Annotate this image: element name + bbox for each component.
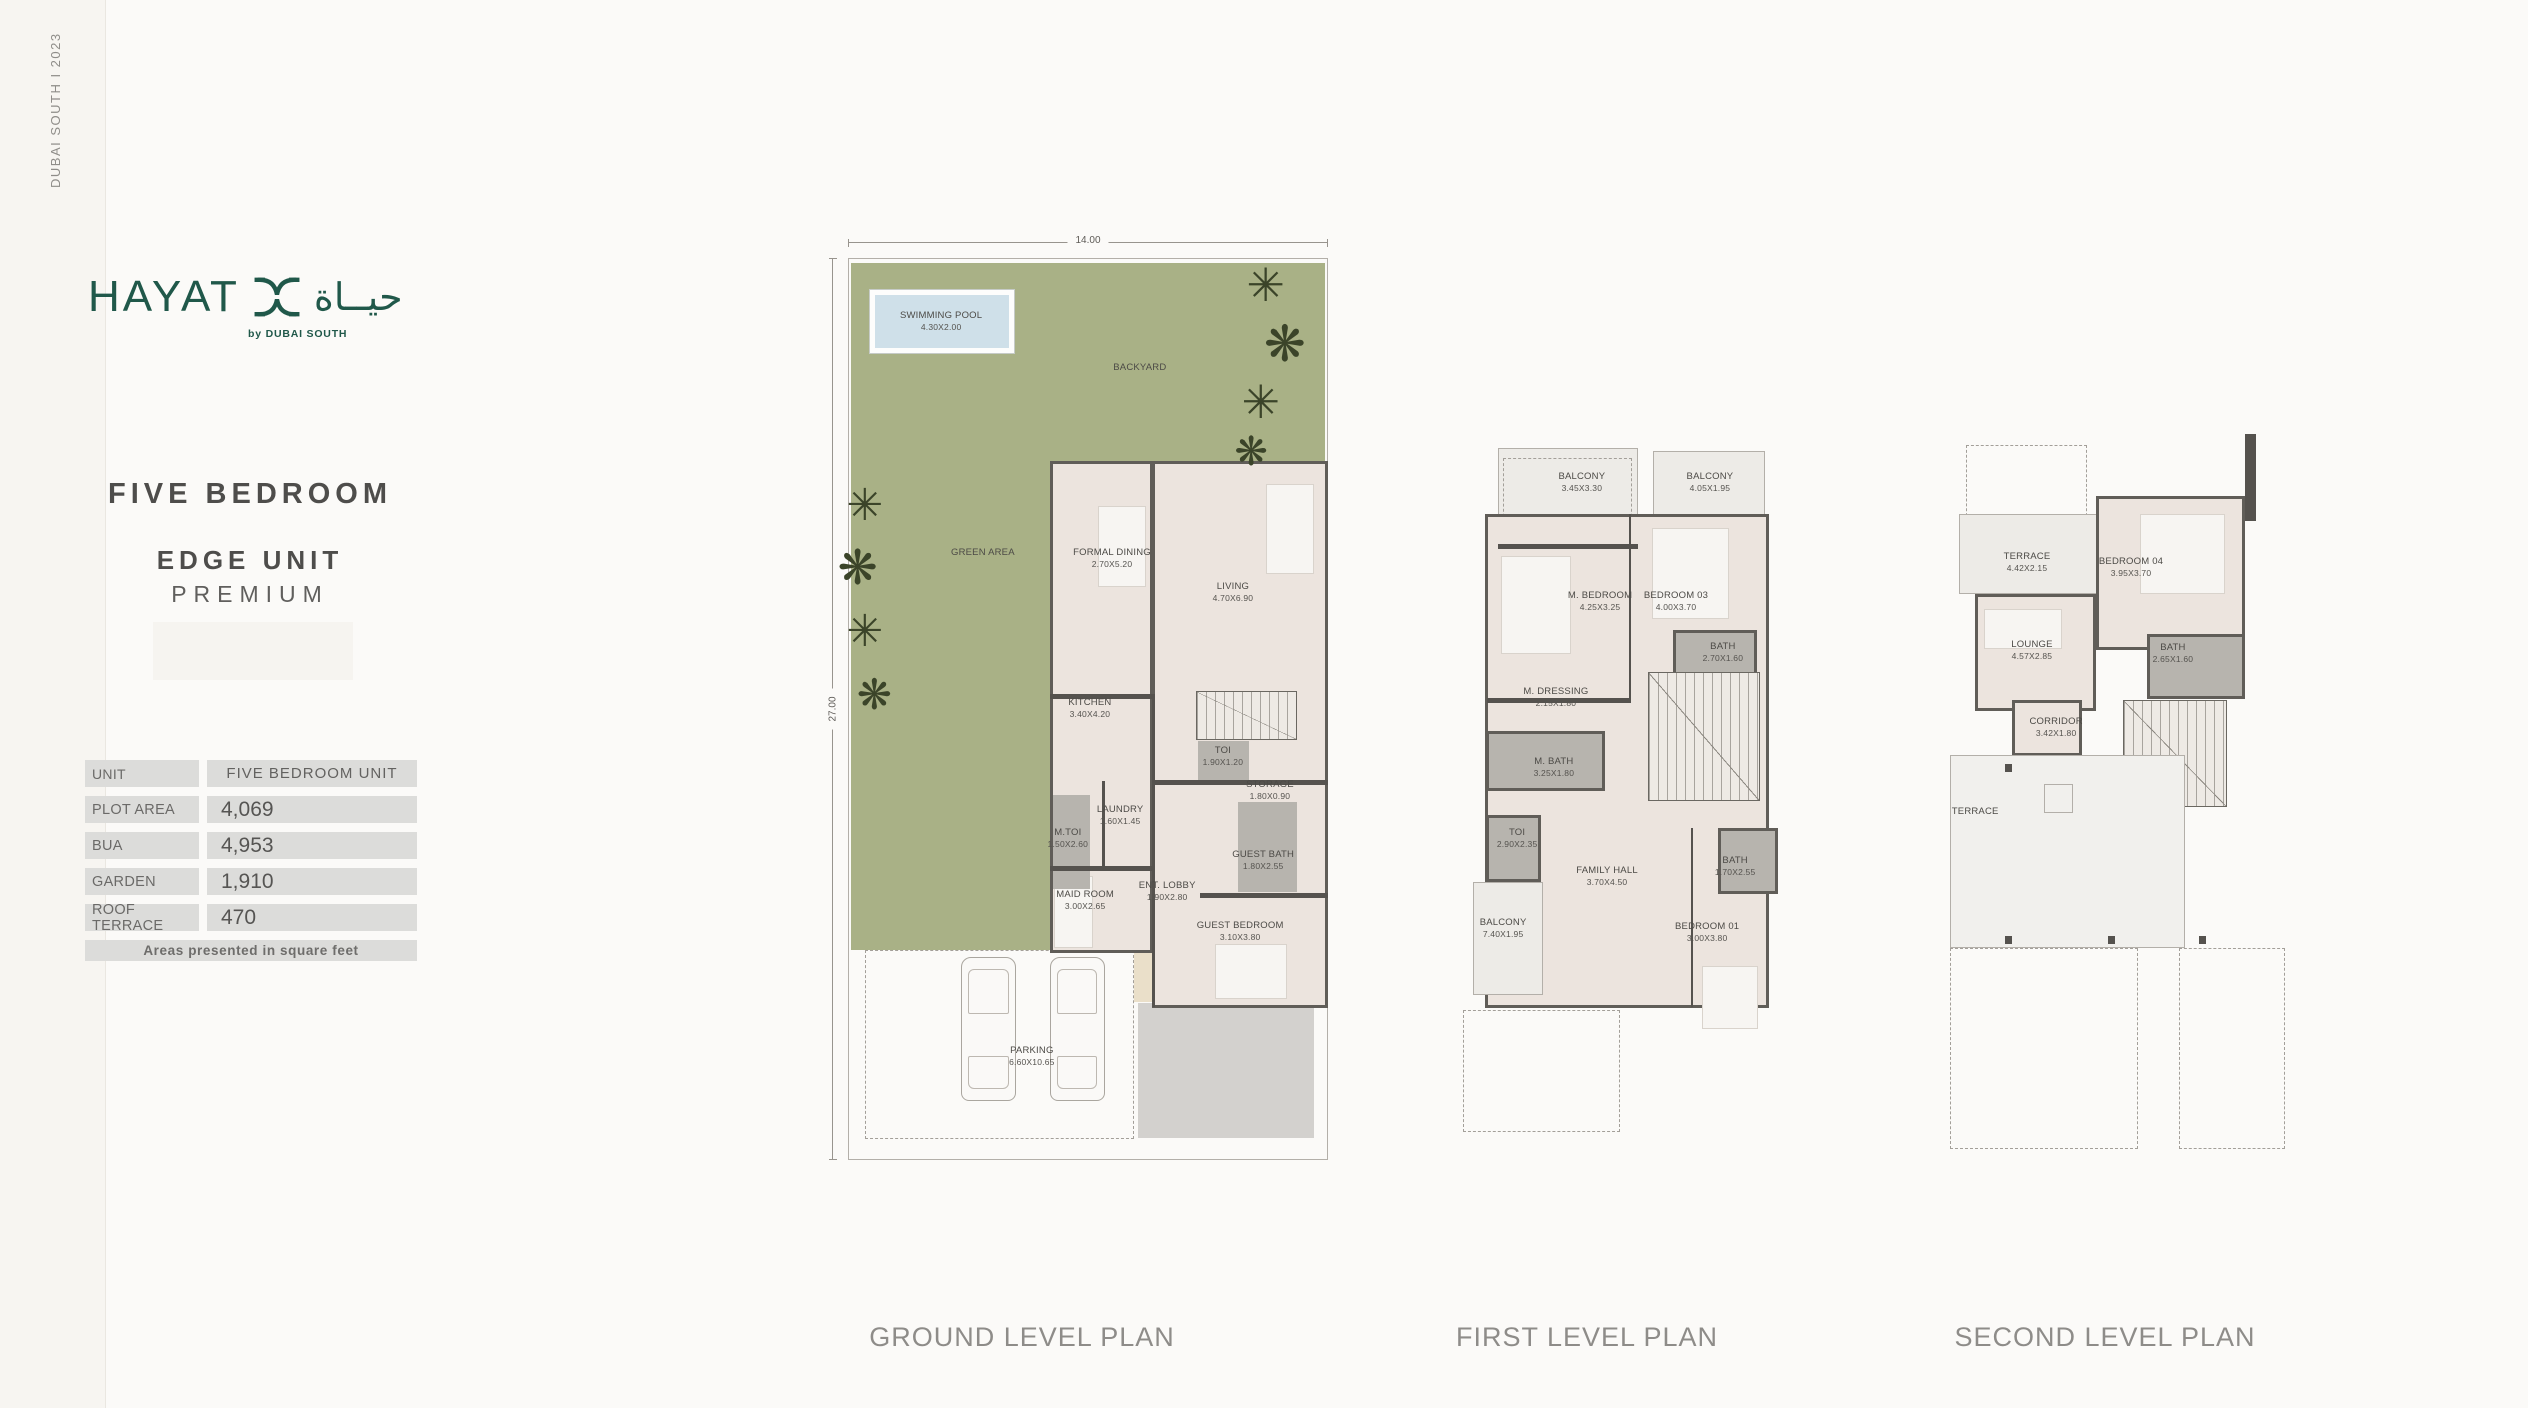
spec-value: 4,953 xyxy=(207,832,417,859)
dimension-top: 14.00 xyxy=(848,242,1328,243)
unit-title: FIVE BEDROOM xyxy=(85,478,415,511)
room-label: LAUNDRY1.60X1.45 xyxy=(1097,804,1144,827)
room-label: BEDROOM 013.00X3.80 xyxy=(1675,921,1739,944)
second-level-plan: TERRACE4.42X2.15BEDROOM 043.95X3.70LOUNG… xyxy=(1945,430,2300,1160)
room-label: STORAGE1.80X0.90 xyxy=(1246,779,1294,802)
room-label: M. BEDROOM4.25X3.25 xyxy=(1568,590,1632,613)
plan-region xyxy=(1138,1003,1313,1138)
edge-vertical-text: DUBAI SOUTH I 2023 xyxy=(48,18,63,188)
tree-icon: ❋ xyxy=(837,545,877,593)
room-label: FORMAL DINING2.70X5.20 xyxy=(1073,547,1151,570)
room-label: TOI1.90X1.20 xyxy=(1203,745,1244,768)
room-label: BEDROOM 034.00X3.70 xyxy=(1644,590,1708,613)
tree-icon: ✳ xyxy=(846,610,883,654)
plan-region xyxy=(1215,944,1287,1000)
room-label: GUEST BEDROOM3.10X3.80 xyxy=(1197,920,1284,943)
plan-region xyxy=(2044,784,2072,813)
brochure-page: DUBAI SOUTH I 2023 HAYAT حيــاة by DUBAI… xyxy=(0,0,2528,1408)
room-label: GUEST BATH1.80X2.55 xyxy=(1232,848,1294,871)
specs-table: UNITFIVE BEDROOM UNITPLOT AREA4,069BUA4,… xyxy=(85,760,417,961)
room-label: PARKING6.60X10.65 xyxy=(1009,1045,1054,1068)
first-level-plan: BALCONY3.45X3.30BALCONY4.05X1.95M. BEDRO… xyxy=(1452,437,1802,1137)
plan-region xyxy=(1463,1010,1621,1133)
unit-subtitle-premium: PREMIUM xyxy=(85,581,415,608)
tree-icon: ✳ xyxy=(846,484,883,528)
spec-rows: UNITFIVE BEDROOM UNITPLOT AREA4,069BUA4,… xyxy=(85,760,417,931)
room-label: M. BATH3.25X1.80 xyxy=(1534,755,1575,778)
brand-byline: by DUBAI SOUTH xyxy=(248,328,347,340)
plan-region xyxy=(1200,893,1328,898)
decorative-box xyxy=(153,622,353,680)
unit-subtitle: EDGE UNIT xyxy=(85,545,415,576)
room-label: TOI2.90X2.35 xyxy=(1497,827,1538,850)
plan-region xyxy=(1702,966,1758,1029)
brand-wordmark: HAYAT xyxy=(88,272,240,322)
plan-region xyxy=(1691,828,1693,1008)
plan-region xyxy=(1498,544,1638,549)
car-icon xyxy=(1050,957,1105,1101)
room-label: BATH1.70X2.55 xyxy=(1715,855,1756,878)
tree-icon: ❋ xyxy=(1264,319,1306,369)
plan-region xyxy=(1152,780,1328,785)
room-label: BACKYARD xyxy=(1113,362,1166,374)
plan-region xyxy=(2005,936,2012,944)
plan-region xyxy=(1050,866,1153,871)
room-label: BALCONY4.05X1.95 xyxy=(1687,471,1734,494)
room-label: BATH2.70X1.60 xyxy=(1703,641,1744,664)
plan-region xyxy=(2199,936,2206,944)
room-label: BEDROOM 043.95X3.70 xyxy=(2099,556,2163,579)
spec-label: GARDEN xyxy=(85,868,199,895)
plan-region xyxy=(1966,445,2087,522)
ground-level-caption: GROUND LEVEL PLAN xyxy=(869,1322,1175,1353)
brand-block: HAYAT حيــاة by DUBAI SOUTH xyxy=(88,272,420,347)
plan-region xyxy=(851,263,1050,950)
spec-row: PLOT AREA4,069 xyxy=(85,796,417,823)
hayat-knot-icon xyxy=(252,272,302,322)
spec-row: BUA4,953 xyxy=(85,832,417,859)
ground-level-plan: ✳❋✳❋✳❋✳❋SWIMMING POOL4.30X2.00BACKYARDGR… xyxy=(848,258,1328,1160)
room-label: BALCONY7.40X1.95 xyxy=(1480,916,1527,939)
room-label: TERRACE xyxy=(1952,806,1999,818)
room-label: GREEN AREA xyxy=(951,547,1015,559)
brand-arabic-wordmark: حيــاة xyxy=(314,275,403,320)
spec-label: UNIT xyxy=(85,760,199,787)
room-label: LOUNGE4.57X2.85 xyxy=(2011,638,2052,661)
room-label: KITCHEN3.40X4.20 xyxy=(1068,697,1111,720)
spec-row: GARDEN1,910 xyxy=(85,868,417,895)
plan-region xyxy=(1266,484,1314,574)
dimension-left: 27.00 xyxy=(832,258,833,1160)
plan-region xyxy=(2179,948,2286,1149)
spec-label: PLOT AREA xyxy=(85,796,199,823)
plan-region xyxy=(1501,556,1571,654)
tree-icon: ✳ xyxy=(1242,379,1281,425)
plan-region xyxy=(2245,434,2256,522)
left-edge-strip xyxy=(0,0,106,1408)
spec-value: FIVE BEDROOM UNIT xyxy=(207,760,417,787)
plan-region xyxy=(2005,764,2012,772)
plan-region xyxy=(1152,694,1155,1007)
spec-value: 4,069 xyxy=(207,796,417,823)
room-label: M. DRESSING2.15X1.80 xyxy=(1523,685,1588,708)
second-level-caption: SECOND LEVEL PLAN xyxy=(1954,1322,2255,1353)
tree-icon: ❋ xyxy=(857,674,892,716)
first-level-caption: FIRST LEVEL PLAN xyxy=(1456,1322,1718,1353)
room-label: TERRACE4.42X2.15 xyxy=(2004,551,2051,574)
room-label: LIVING4.70X6.90 xyxy=(1213,580,1254,603)
spec-label: BUA xyxy=(85,832,199,859)
spec-row: ROOF TERRACE470 xyxy=(85,904,417,931)
plan-region xyxy=(2140,514,2225,594)
plan-region xyxy=(2108,936,2115,944)
tree-icon: ❋ xyxy=(1234,432,1268,472)
room-label: ENT. LOBBY1.90X2.80 xyxy=(1139,880,1196,903)
room-label: FAMILY HALL3.70X4.50 xyxy=(1576,865,1638,888)
room-label: CORRIDOR3.42X1.80 xyxy=(2029,716,2082,739)
room-label: MAID ROOM3.00X2.65 xyxy=(1056,889,1114,912)
plan-region xyxy=(1950,948,2138,1149)
specs-footnote: Areas presented in square feet xyxy=(85,940,417,961)
stairs xyxy=(1196,691,1297,740)
room-label: BATH2.65X1.60 xyxy=(2153,641,2194,664)
tree-icon: ✳ xyxy=(1246,262,1285,308)
room-label: SWIMMING POOL4.30X2.00 xyxy=(900,310,982,333)
spec-row: UNITFIVE BEDROOM UNIT xyxy=(85,760,417,787)
plan-region xyxy=(1238,802,1297,892)
room-label: M.TOI1.50X2.60 xyxy=(1048,827,1089,850)
spec-value: 1,910 xyxy=(207,868,417,895)
room-label: BALCONY3.45X3.30 xyxy=(1558,471,1605,494)
spec-value: 470 xyxy=(207,904,417,931)
car-icon xyxy=(961,957,1016,1101)
spec-label: ROOF TERRACE xyxy=(85,904,199,931)
stairs xyxy=(1648,672,1760,802)
